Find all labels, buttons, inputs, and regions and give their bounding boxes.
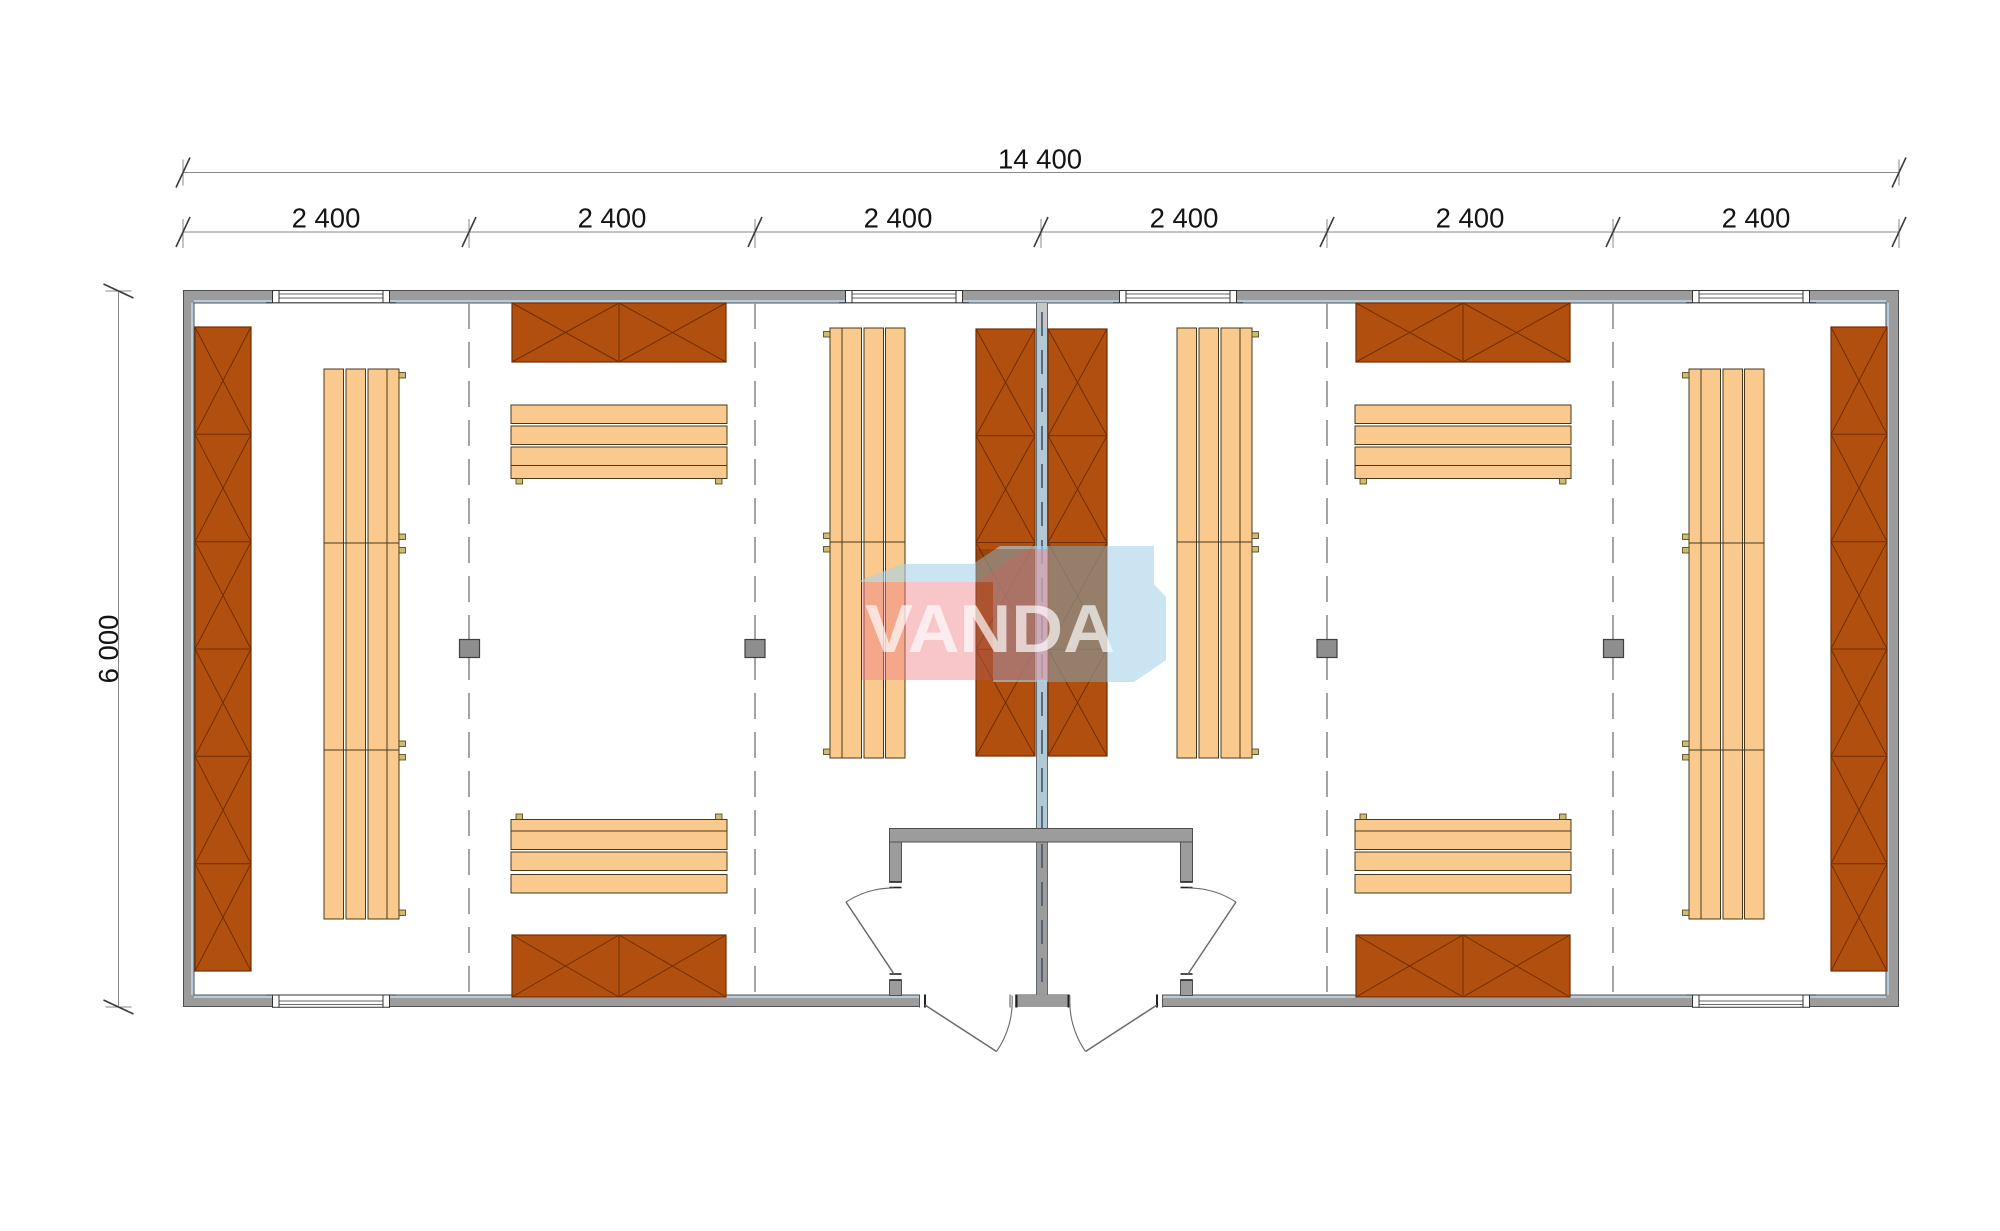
svg-text:2 400: 2 400 [1722,203,1791,234]
svg-text:2 400: 2 400 [864,203,933,234]
svg-text:14 400: 14 400 [998,144,1082,175]
svg-text:VANDA: VANDA [865,591,1115,667]
svg-text:2 400: 2 400 [292,203,361,234]
svg-text:2 400: 2 400 [1436,203,1505,234]
svg-text:2 400: 2 400 [578,203,647,234]
svg-text:6 000: 6 000 [93,615,124,684]
svg-text:2 400: 2 400 [1150,203,1219,234]
